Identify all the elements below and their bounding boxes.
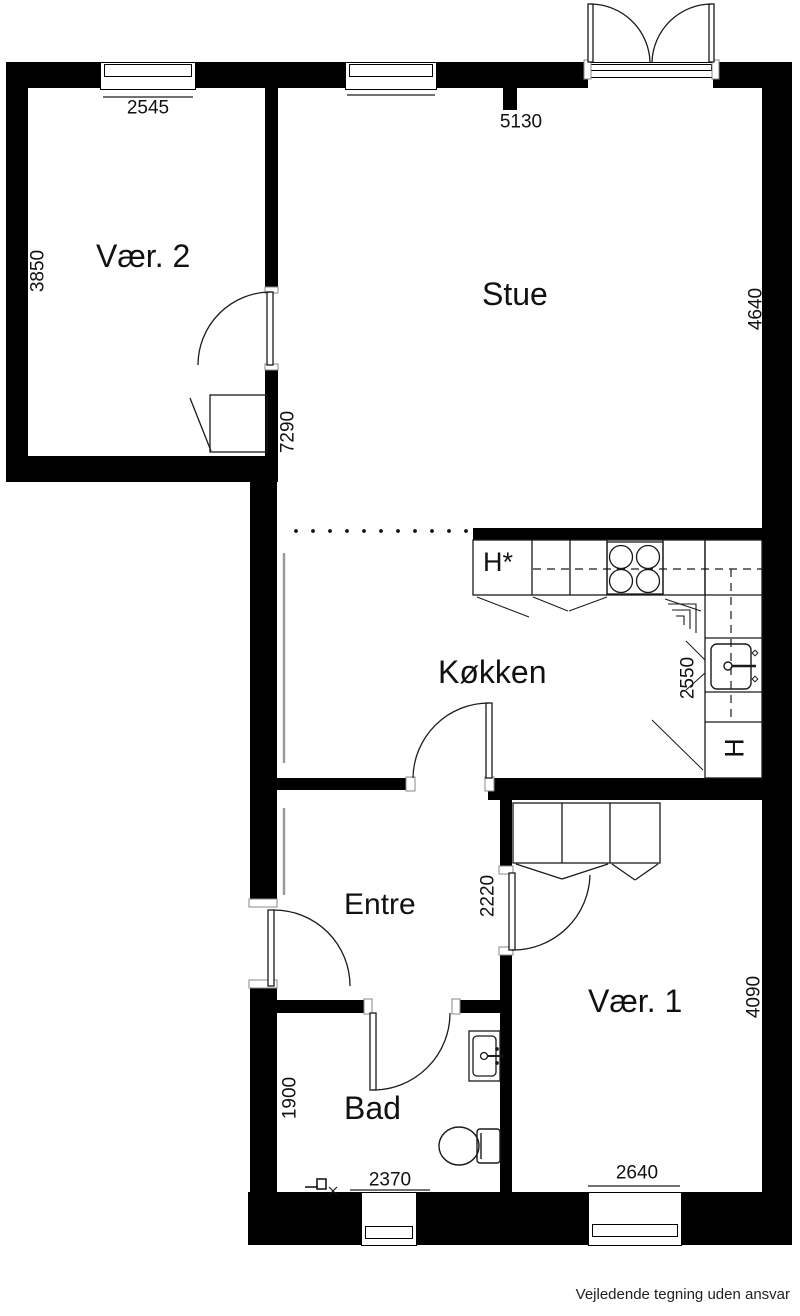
room-label-stue: Stue [482, 278, 548, 310]
door-vaer1 [509, 873, 590, 950]
dim-stue-depth: 7290 [279, 411, 298, 453]
door-vaer2 [198, 292, 273, 365]
room-divider-dotted-line [294, 529, 468, 533]
dim-entre-height: 2220 [479, 875, 498, 917]
french-doors-stue [588, 4, 714, 62]
dim-stue-width: 5130 [500, 113, 542, 132]
dim-vaer2-width: 2545 [127, 99, 169, 118]
dim-vaer1-height: 4090 [745, 976, 764, 1018]
door-koekken [413, 703, 492, 778]
kitchen-sink-icon [711, 644, 758, 689]
room-label-bad: Bad [344, 1092, 401, 1124]
room-label-koekken: Køkken [438, 656, 546, 688]
dim-vaer2-height: 3850 [29, 250, 48, 292]
vaer2-closet [190, 395, 267, 452]
vaer1-wardrobe [513, 803, 660, 880]
dim-koekken-height: 2550 [679, 657, 698, 699]
room-label-entre: Entre [344, 890, 416, 920]
door-entrance [268, 910, 350, 986]
bad-sink-icon [469, 1031, 503, 1081]
disclaimer-text: Vejledende tegning uden ansvar [576, 1287, 790, 1302]
floor-plan: Vær. 2 Stue Køkken Entre Vær. 1 Bad H* H… [0, 0, 800, 1316]
kitchen-fridge-label: H* [483, 549, 513, 576]
dim-bad-width: 2370 [369, 1171, 411, 1190]
dim-bad-height: 1900 [281, 1077, 300, 1119]
room-label-vaer2: Vær. 2 [96, 240, 190, 272]
toilet-icon [439, 1127, 500, 1165]
room-label-vaer1: Vær. 1 [588, 985, 682, 1017]
kitchen-appliance-label: H [722, 738, 749, 758]
dim-vaer1-width: 2640 [616, 1164, 658, 1183]
dim-stue-height: 4640 [747, 288, 766, 330]
stove-icon [607, 542, 663, 594]
shower-tap-icon [305, 1179, 337, 1195]
door-bad [370, 1013, 450, 1090]
